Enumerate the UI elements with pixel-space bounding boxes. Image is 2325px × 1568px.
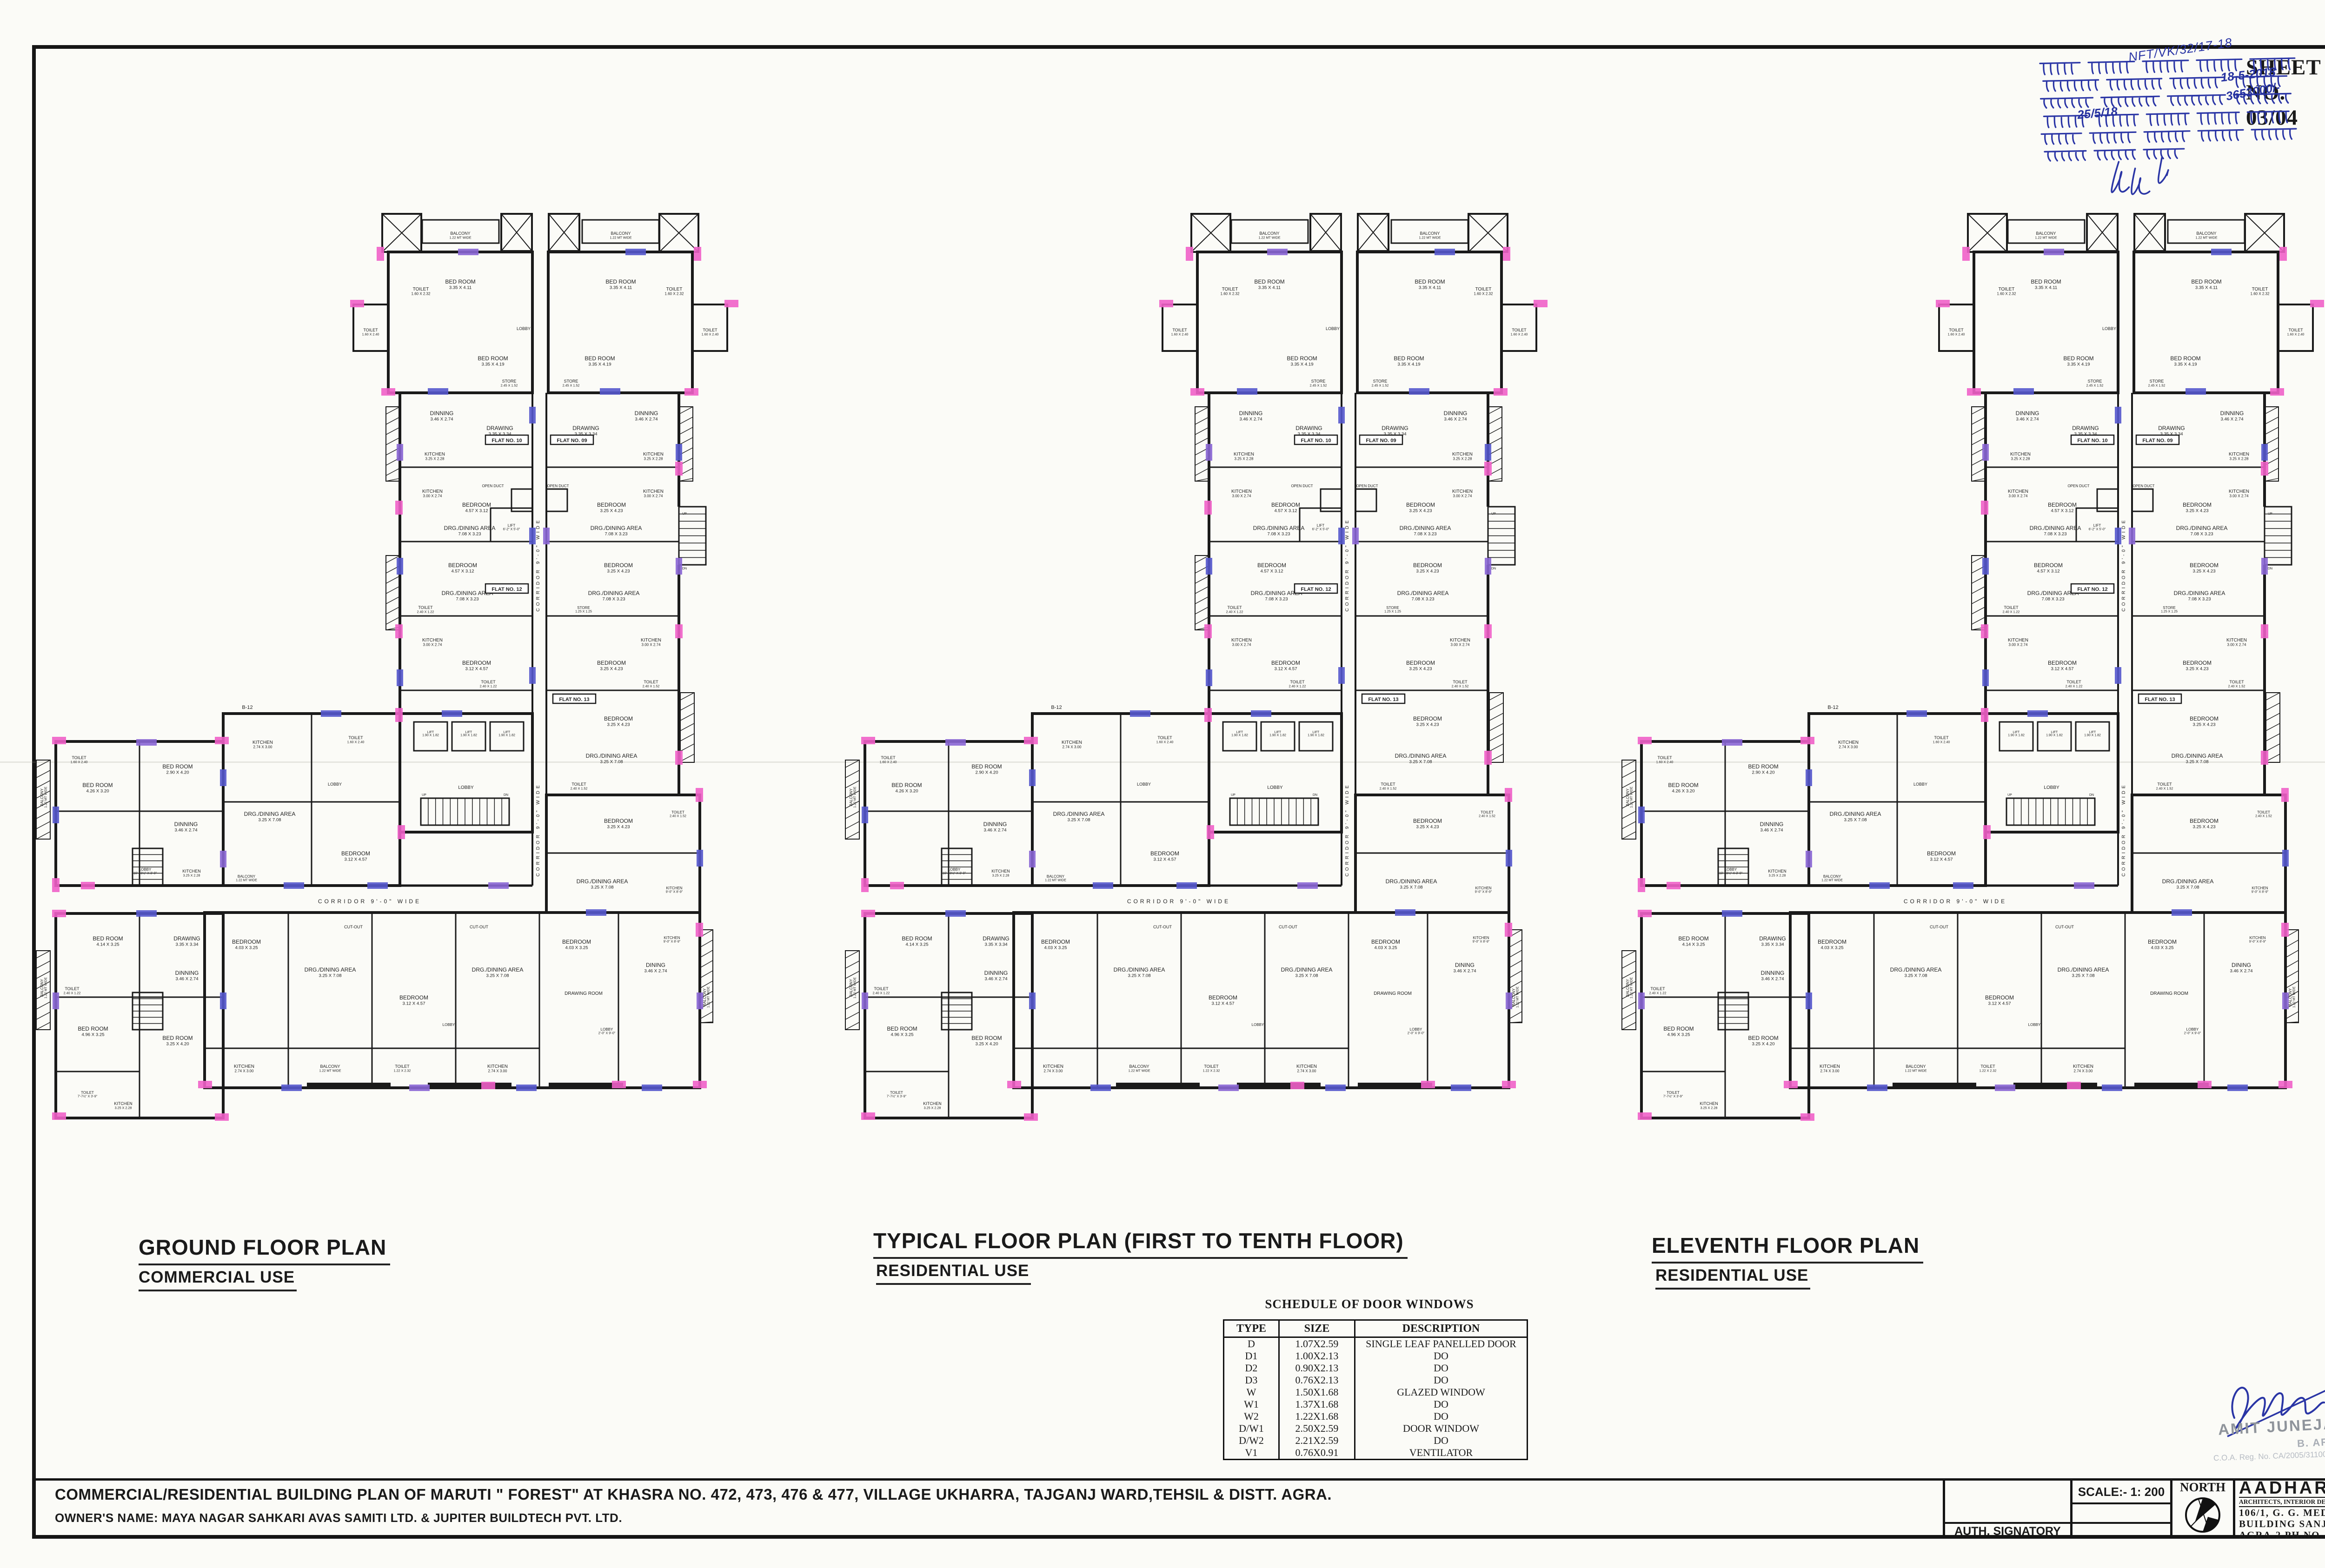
svg-text:UP: UP [2268, 512, 2272, 516]
svg-text:2.74 X 3.00: 2.74 X 3.00 [1820, 1069, 1840, 1073]
svg-text:KITCHEN: KITCHEN [2229, 489, 2249, 494]
svg-text:2.74 X 3.00: 2.74 X 3.00 [1044, 1069, 1063, 1073]
svg-text:3.46 X 2.74: 3.46 X 2.74 [430, 417, 453, 422]
svg-text:BED ROOM: BED ROOM [1663, 1025, 1694, 1032]
svg-text:TOILET: TOILET [666, 287, 683, 292]
north-cell: NORTH [2170, 1478, 2233, 1539]
svg-text:BEDROOM: BEDROOM [1209, 994, 1237, 1001]
svg-text:1.22 X 2.32: 1.22 X 2.32 [1980, 1069, 1997, 1073]
floor-plan-drawing: BED ROOM3.35 X 4.11BED ROOM3.35 X 4.11TO… [837, 207, 1627, 1216]
svg-text:1.90 X 1.82: 1.90 X 1.82 [2008, 734, 2025, 737]
svg-text:OPEN DUCT: OPEN DUCT [482, 484, 504, 488]
svg-text:3.00 X 2.74: 3.00 X 2.74 [2009, 494, 2028, 498]
svg-text:BEDROOM: BEDROOM [1927, 850, 1956, 857]
scale-cell: SCALE:- 1: 200 [2070, 1478, 2170, 1539]
svg-text:2.40 X 1.52: 2.40 X 1.52 [1452, 684, 1469, 688]
svg-text:TOILET: TOILET [1227, 605, 1242, 610]
schedule-row: W11.37X1.68DO [1224, 1398, 1528, 1410]
svg-text:CORRIDOR 9'-0" WIDE: CORRIDOR 9'-0" WIDE [2121, 783, 2126, 876]
svg-text:1.22 X 2.32: 1.22 X 2.32 [1203, 1069, 1220, 1073]
svg-text:3.25 X 2.28: 3.25 X 2.28 [644, 457, 663, 461]
svg-text:3.25 X 4.23: 3.25 X 4.23 [607, 824, 630, 829]
svg-text:3.25 X 2.28: 3.25 X 2.28 [2230, 457, 2249, 461]
svg-text:BED ROOM: BED ROOM [891, 782, 922, 788]
svg-text:1.22 MT WIDE: 1.22 MT WIDE [450, 236, 472, 240]
svg-text:DINNING: DINNING [1761, 970, 1785, 976]
svg-text:UP: UP [1231, 794, 1236, 797]
svg-text:DRAWING: DRAWING [2158, 425, 2185, 431]
svg-text:9'-0" X 8'-9": 9'-0" X 8'-9" [2249, 940, 2266, 944]
svg-text:BALCONY: BALCONY [40, 979, 44, 997]
svg-text:KITCHEN: KITCHEN [2008, 638, 2028, 643]
svg-text:3.25 X 7.08: 3.25 X 7.08 [2072, 973, 2094, 978]
svg-text:BALCONY: BALCONY [1047, 874, 1065, 879]
svg-text:3.35 X 3.34: 3.35 X 3.34 [984, 942, 1008, 947]
svg-text:3.00 X 2.74: 3.00 X 2.74 [1232, 643, 1251, 647]
svg-text:1.90 X 1.82: 1.90 X 1.82 [460, 734, 477, 737]
svg-text:4.57 X 3.12: 4.57 X 3.12 [2051, 508, 2073, 513]
svg-text:1.22 MT WIDE: 1.22 MT WIDE [2035, 236, 2057, 240]
svg-text:BALCONY: BALCONY [611, 231, 631, 236]
svg-text:2.40 X 1.52: 2.40 X 1.52 [1479, 815, 1495, 818]
svg-text:CUT-OUT: CUT-OUT [1279, 925, 1297, 929]
svg-text:BEDROOM: BEDROOM [2148, 939, 2177, 945]
svg-text:DRG./DINING AREA: DRG./DINING AREA [1253, 525, 1305, 531]
svg-text:LOBBY: LOBBY [948, 867, 961, 872]
svg-text:STORE: STORE [564, 379, 578, 384]
svg-text:3.35 X 4.19: 3.35 X 4.19 [2174, 362, 2197, 367]
svg-text:DRAWING: DRAWING [983, 935, 1010, 942]
svg-text:FLAT NO. 12: FLAT NO. 12 [2077, 587, 2107, 592]
svg-text:CORRIDOR 9'-0" WIDE: CORRIDOR 9'-0" WIDE [536, 518, 541, 611]
svg-text:DRG./DINING AREA: DRG./DINING AREA [2174, 590, 2225, 596]
firm-tagline: ARCHITECTS, INTERIOR DESIGNERS, VAASTU C… [2239, 1497, 2325, 1507]
svg-text:DRAWING ROOM: DRAWING ROOM [2150, 991, 2188, 996]
svg-text:2'-0" X 9'-0": 2'-0" X 9'-0" [1408, 1032, 1425, 1035]
svg-text:KITCHEN: KITCHEN [2073, 1064, 2093, 1069]
svg-text:KITCHEN: KITCHEN [1296, 1064, 1317, 1069]
svg-text:KITCHEN: KITCHEN [991, 869, 1010, 873]
svg-text:BED ROOM: BED ROOM [605, 278, 636, 285]
svg-text:3.46 X 2.74: 3.46 X 2.74 [2220, 417, 2244, 422]
svg-text:BED ROOM: BED ROOM [1415, 278, 1445, 285]
svg-text:DRG./DINING AREA: DRG./DINING AREA [1397, 590, 1449, 596]
svg-text:BALCONY: BALCONY [849, 979, 853, 997]
svg-text:CORRIDOR 9'-0" WIDE: CORRIDOR 9'-0" WIDE [318, 898, 421, 905]
svg-text:3.25 X 7.08: 3.25 X 7.08 [1067, 817, 1090, 822]
svg-text:9'-0" X 8'-9": 9'-0" X 8'-9" [1473, 940, 1490, 944]
firm-address-1: 106/1, G. G. MEDICAL INSTT. [2239, 1507, 2325, 1518]
firm-cell: AADHARSHILA ARCHITECTS, INTERIOR DESIGNE… [2233, 1478, 2325, 1539]
svg-text:BALCONY: BALCONY [40, 788, 44, 806]
svg-text:BALCONY: BALCONY [1626, 979, 1630, 997]
svg-text:1.22 MT WIDE: 1.22 MT WIDE [1905, 1069, 1927, 1073]
svg-text:2.74 X 3.00: 2.74 X 3.00 [1063, 745, 1082, 749]
svg-text:DRG./DINING AREA: DRG./DINING AREA [1386, 878, 1437, 885]
svg-text:KITCHEN: KITCHEN [234, 1064, 254, 1069]
svg-text:3.12 X 4.57: 3.12 X 4.57 [465, 666, 488, 671]
svg-text:2.40 X 1.22: 2.40 X 1.22 [2003, 610, 2020, 614]
svg-text:KITCHEN: KITCHEN [1768, 869, 1787, 873]
schedule-row: W1.50X1.68GLAZED WINDOW [1224, 1386, 1528, 1398]
svg-text:DRG./DINING AREA: DRG./DINING AREA [444, 525, 496, 531]
svg-text:BALCONY: BALCONY [1823, 874, 1841, 879]
svg-text:1.60 X 2.40: 1.60 X 2.40 [1933, 740, 1950, 744]
svg-text:3.35 X 4.19: 3.35 X 4.19 [1290, 362, 1313, 367]
svg-text:OPEN DUCT: OPEN DUCT [2132, 484, 2154, 488]
svg-text:3.25 X 4.23: 3.25 X 4.23 [2192, 722, 2215, 727]
svg-text:FLAT NO. 13: FLAT NO. 13 [1368, 697, 1398, 702]
svg-text:CORRIDOR 9'-0" WIDE: CORRIDOR 9'-0" WIDE [1345, 518, 1350, 611]
svg-text:DN: DN [682, 567, 687, 570]
svg-text:CUT-OUT: CUT-OUT [1930, 925, 1948, 929]
svg-text:KITCHEN: KITCHEN [1820, 1064, 1840, 1069]
svg-text:1.60 X 2.40: 1.60 X 2.40 [2287, 332, 2305, 337]
svg-text:7.08 X 3.23: 7.08 X 3.23 [2041, 596, 2064, 602]
svg-text:DINNING: DINNING [1444, 410, 1468, 417]
svg-text:1.90 X 1.82: 1.90 X 1.82 [1308, 734, 1324, 737]
svg-text:1.90 X 1.82: 1.90 X 1.82 [1269, 734, 1286, 737]
svg-text:1.22 MT WIDE: 1.22 MT WIDE [2293, 986, 2296, 1008]
svg-text:KITCHEN: KITCHEN [114, 1101, 133, 1106]
svg-text:LOBBY: LOBBY [139, 867, 152, 872]
svg-text:4.03 X 3.25: 4.03 X 3.25 [2151, 945, 2173, 950]
svg-text:6'-2" X 5'-0": 6'-2" X 5'-0" [1312, 528, 1329, 531]
svg-text:TOILET: TOILET [1999, 287, 2015, 292]
svg-text:BEDROOM: BEDROOM [1257, 562, 1286, 569]
svg-text:1.90 X 1.82: 1.90 X 1.82 [422, 734, 439, 737]
svg-text:KITCHEN: KITCHEN [923, 1101, 942, 1106]
svg-text:3.25 X 4.23: 3.25 X 4.23 [607, 722, 630, 727]
svg-text:TOILET: TOILET [644, 680, 658, 684]
svg-text:9'-0" X 8'-9": 9'-0" X 8'-9" [2252, 891, 2269, 894]
svg-text:4.14 X 3.25: 4.14 X 3.25 [96, 942, 119, 947]
svg-text:B-12: B-12 [1827, 705, 1838, 710]
svg-text:1.22 MT WIDE: 1.22 MT WIDE [1419, 236, 1441, 240]
svg-text:1.22 MT WIDE: 1.22 MT WIDE [236, 879, 257, 882]
svg-text:3.35 X 4.19: 3.35 X 4.19 [1397, 362, 1420, 367]
svg-text:STORE: STORE [577, 606, 590, 610]
floor-plan-typical: BED ROOM3.35 X 4.11BED ROOM3.35 X 4.11TO… [837, 207, 1627, 1216]
svg-text:3.25 X 7.08: 3.25 X 7.08 [258, 817, 281, 822]
svg-text:3.25 X 2.28: 3.25 X 2.28 [425, 457, 445, 461]
svg-text:3.00 X 2.74: 3.00 X 2.74 [2227, 643, 2246, 647]
svg-text:2.40 X 1.22: 2.40 X 1.22 [1226, 610, 1243, 614]
svg-text:3.25 X 7.08: 3.25 X 7.08 [1400, 885, 1422, 890]
svg-text:3.46 X 2.74: 3.46 X 2.74 [635, 417, 658, 422]
svg-text:KITCHEN: KITCHEN [422, 638, 443, 643]
plan-use-eleventh: RESIDENTIAL USE [1655, 1266, 1810, 1290]
auth-signatory-cell: AUTH. SIGNATORY [1945, 1478, 2070, 1539]
svg-text:2.40 X 1.22: 2.40 X 1.22 [417, 610, 434, 614]
svg-text:KITCHEN: KITCHEN [422, 489, 443, 494]
svg-text:STORE: STORE [1386, 606, 1399, 610]
schedule-col-type: TYPE [1224, 1320, 1279, 1337]
svg-text:4.96 X 3.25: 4.96 X 3.25 [81, 1032, 104, 1037]
svg-text:BEDROOM: BEDROOM [232, 939, 261, 945]
svg-text:BEDROOM: BEDROOM [399, 994, 428, 1001]
svg-text:DRAWING: DRAWING [1759, 935, 1786, 942]
svg-text:3.35 X 4.11: 3.35 X 4.11 [2035, 285, 2057, 290]
svg-text:DRG./DINING AREA: DRG./DINING AREA [1281, 966, 1333, 973]
svg-text:1.22 MT WIDE: 1.22 MT WIDE [854, 787, 857, 808]
svg-text:1.60 X 2.40: 1.60 X 2.40 [347, 740, 365, 744]
svg-text:BED ROOM: BED ROOM [2191, 278, 2221, 285]
plan-title-typical: TYPICAL FLOOR PLAN (FIRST TO TENTH FLOOR… [873, 1228, 1408, 1259]
svg-text:1.25 X 1.25: 1.25 X 1.25 [575, 610, 592, 614]
floor-plan-drawing: BED ROOM3.35 X 4.11BED ROOM3.35 X 4.11TO… [1614, 207, 2325, 1216]
schedule-row: D1.07X2.59SINGLE LEAF PANELLED DOOR [1224, 1337, 1528, 1350]
svg-text:4.26 X 3.20: 4.26 X 3.20 [86, 788, 109, 794]
svg-text:9'-0" X 8'-9": 9'-0" X 8'-9" [666, 891, 683, 894]
svg-text:KITCHEN: KITCHEN [2010, 452, 2031, 457]
svg-text:BED ROOM: BED ROOM [2170, 355, 2200, 362]
svg-text:1.60 X 2.32: 1.60 X 2.32 [1474, 292, 1493, 296]
svg-text:BED ROOM: BED ROOM [478, 355, 508, 362]
svg-text:1.90 X 1.82: 1.90 X 1.82 [2084, 734, 2101, 737]
svg-text:DRAWING: DRAWING [486, 425, 513, 431]
svg-text:3.25 X 7.08: 3.25 X 7.08 [591, 885, 613, 890]
svg-text:CORRIDOR 9'-0" WIDE: CORRIDOR 9'-0" WIDE [536, 783, 541, 876]
svg-text:3.25 X 2.28: 3.25 X 2.28 [2011, 457, 2030, 461]
svg-text:BEDROOM: BEDROOM [462, 660, 491, 666]
svg-text:KITCHEN: KITCHEN [643, 489, 664, 494]
svg-text:BED ROOM: BED ROOM [887, 1025, 917, 1032]
svg-text:3.00 X 2.74: 3.00 X 2.74 [2230, 494, 2249, 498]
svg-text:7.08 X 3.23: 7.08 X 3.23 [458, 531, 481, 536]
svg-text:TOILET: TOILET [2004, 605, 2019, 610]
project-title: COMMERCIAL/RESIDENTIAL BUILDING PLAN OF … [55, 1486, 1332, 1503]
svg-text:TOILET: TOILET [1667, 1091, 1680, 1095]
svg-text:1.60 X 2.40: 1.60 X 2.40 [1511, 332, 1528, 337]
schedule-row: D/W12.50X2.59DOOR WINDOW [1224, 1422, 1528, 1435]
svg-text:2.45 X 1.52: 2.45 X 1.52 [1372, 384, 1389, 388]
svg-text:BEDROOM: BEDROOM [2183, 660, 2212, 666]
svg-text:DRAWING: DRAWING [2072, 425, 2099, 431]
svg-text:KITCHEN: KITCHEN [1062, 740, 1082, 745]
svg-text:3.25 X 7.08: 3.25 X 7.08 [1128, 973, 1150, 978]
svg-text:4.96 X 3.25: 4.96 X 3.25 [890, 1032, 913, 1037]
svg-text:STORE: STORE [2088, 379, 2102, 384]
svg-text:7.08 X 3.23: 7.08 X 3.23 [1267, 531, 1290, 536]
svg-text:1.22 MT WIDE: 1.22 MT WIDE [1630, 977, 1634, 999]
svg-text:4.57 X 3.12: 4.57 X 3.12 [1274, 508, 1297, 513]
svg-text:1.90 X 1.82: 1.90 X 1.82 [1231, 734, 1248, 737]
svg-text:BEDROOM: BEDROOM [448, 562, 477, 569]
architect-degree: B. ARCH [2297, 1435, 2325, 1449]
svg-text:DINNING: DINNING [1760, 821, 1784, 827]
svg-text:BEDROOM: BEDROOM [562, 939, 591, 945]
svg-text:9'-0" X 8'-9": 9'-0" X 8'-9" [1475, 891, 1492, 894]
svg-text:4.57 X 3.12: 4.57 X 3.12 [451, 569, 474, 574]
svg-text:3.12 X 4.57: 3.12 X 4.57 [1988, 1001, 2011, 1006]
north-compass-icon [2182, 1494, 2224, 1536]
svg-text:3.00 X 2.74: 3.00 X 2.74 [1232, 494, 1251, 498]
svg-text:3.46 X 2.74: 3.46 X 2.74 [2230, 968, 2253, 973]
svg-text:BEDROOM: BEDROOM [1413, 562, 1442, 569]
svg-text:3.25 X 2.28: 3.25 X 2.28 [1701, 1106, 1718, 1110]
svg-text:KITCHEN: KITCHEN [1838, 740, 1859, 745]
svg-text:LOBBY: LOBBY [1137, 782, 1151, 787]
svg-text:3.46 X 2.74: 3.46 X 2.74 [1444, 417, 1467, 422]
svg-text:BALCONY: BALCONY [849, 788, 853, 806]
svg-text:TOILET: TOILET [481, 680, 496, 684]
svg-text:FLAT NO. 12: FLAT NO. 12 [1301, 587, 1331, 592]
svg-text:3.46 X 2.74: 3.46 X 2.74 [644, 968, 667, 973]
svg-text:BED ROOM: BED ROOM [585, 355, 615, 362]
svg-text:3.25 X 2.28: 3.25 X 2.28 [115, 1106, 132, 1110]
svg-text:3.35 X 4.19: 3.35 X 4.19 [481, 362, 504, 367]
svg-text:DRG./DINING AREA: DRG./DINING AREA [2162, 878, 2214, 885]
svg-text:DN: DN [2089, 794, 2094, 797]
svg-text:4.03 X 3.25: 4.03 X 3.25 [1044, 945, 1067, 950]
svg-text:KITCHEN: KITCHEN [1475, 886, 1491, 890]
schedule-row: D/W22.21X2.59DO [1224, 1435, 1528, 1447]
svg-text:UP: UP [682, 512, 687, 516]
svg-text:KITCHEN: KITCHEN [1450, 638, 1470, 643]
svg-text:TOILET: TOILET [1157, 735, 1172, 740]
svg-text:3.46 X 2.74: 3.46 X 2.74 [2016, 417, 2039, 422]
svg-text:7'-7½" X 3'-9": 7'-7½" X 3'-9" [78, 1095, 98, 1098]
svg-text:1.60 X 2.32: 1.60 X 2.32 [412, 292, 431, 296]
svg-text:3.35 X 4.11: 3.35 X 4.11 [610, 285, 632, 290]
schedule-row: V10.76X0.91VENTILATOR [1224, 1447, 1528, 1460]
plan-use-ground: COMMERCIAL USE [139, 1268, 297, 1291]
svg-text:DRG./DINING AREA: DRG./DINING AREA [1114, 966, 1165, 973]
svg-text:DRG./DINING AREA: DRG./DINING AREA [1053, 811, 1105, 817]
svg-text:DRG./DINING AREA: DRG./DINING AREA [2172, 753, 2223, 759]
svg-text:TOILET: TOILET [1204, 1064, 1219, 1069]
svg-text:1.25 X 1.25: 1.25 X 1.25 [1384, 610, 1401, 614]
svg-text:UP: UP [422, 794, 426, 797]
svg-text:B-12: B-12 [242, 705, 252, 710]
svg-text:BEDROOM: BEDROOM [341, 850, 370, 857]
svg-text:3.25 X 7.08: 3.25 X 7.08 [2176, 885, 2199, 890]
svg-text:DRG./DINING AREA: DRG./DINING AREA [591, 525, 642, 531]
svg-text:2.74 X 3.00: 2.74 X 3.00 [2074, 1069, 2093, 1073]
svg-text:3.46 X 2.74: 3.46 X 2.74 [1761, 976, 1784, 981]
svg-text:DN: DN [1491, 567, 1496, 570]
svg-text:2.45 X 1.52: 2.45 X 1.52 [2086, 384, 2104, 388]
svg-text:2.40 X 1.22: 2.40 X 1.22 [873, 991, 890, 995]
svg-text:BED ROOM: BED ROOM [445, 278, 475, 285]
svg-text:TOILET: TOILET [881, 755, 896, 760]
auth-cell-divider [1945, 1522, 2070, 1524]
svg-text:6'-2" X 5'-0": 6'-2" X 5'-0" [503, 528, 520, 531]
svg-text:2.90 X 4.20: 2.90 X 4.20 [1752, 770, 1774, 775]
svg-text:BALCONY: BALCONY [1906, 1064, 1926, 1069]
svg-text:CORRIDOR 9'-0" WIDE: CORRIDOR 9'-0" WIDE [2121, 518, 2126, 611]
svg-text:1.60 X 2.40: 1.60 X 2.40 [1156, 740, 1174, 744]
svg-text:BED ROOM: BED ROOM [902, 935, 932, 942]
schedule-table: TYPESIZEDESCRIPTIOND1.07X2.59SINGLE LEAF… [1223, 1319, 1528, 1460]
scale-label: SCALE:- 1: 200 [2073, 1485, 2170, 1499]
svg-text:DRAWING ROOM: DRAWING ROOM [1374, 991, 1412, 996]
svg-text:2.40 X 1.22: 2.40 X 1.22 [64, 991, 81, 995]
svg-text:3.35 X 4.11: 3.35 X 4.11 [449, 285, 472, 290]
svg-text:OPEN DUCT: OPEN DUCT [1356, 484, 1378, 488]
svg-text:3.35 X 3.34: 3.35 X 3.34 [1761, 942, 1784, 947]
svg-text:3.25 X 7.08: 3.25 X 7.08 [1295, 973, 1318, 978]
svg-text:1.22 MT WIDE: 1.22 MT WIDE [319, 1069, 341, 1073]
svg-text:KITCHEN: KITCHEN [182, 869, 201, 873]
svg-text:TOILET: TOILET [2257, 810, 2270, 814]
svg-text:DRG./DINING AREA: DRG./DINING AREA [1395, 753, 1447, 759]
schedule-row: W21.22X1.68DO [1224, 1410, 1528, 1422]
svg-text:10'-10½" X 3'-0": 10'-10½" X 3'-0" [1719, 872, 1743, 875]
svg-text:OPEN DUCT: OPEN DUCT [2067, 484, 2089, 488]
svg-text:10'-10½" X 3'-0": 10'-10½" X 3'-0" [133, 872, 157, 875]
svg-text:BEDROOM: BEDROOM [1413, 715, 1442, 722]
svg-text:KITCHEN: KITCHEN [1234, 452, 1254, 457]
svg-text:BEDROOM: BEDROOM [604, 818, 633, 824]
svg-text:OPEN DUCT: OPEN DUCT [1291, 484, 1313, 488]
svg-text:3.25 X 2.28: 3.25 X 2.28 [1453, 457, 1472, 461]
svg-text:BALCONY: BALCONY [1420, 231, 1440, 236]
svg-text:DRG./DINING AREA: DRG./DINING AREA [1400, 525, 1451, 531]
svg-text:2.40 X 1.52: 2.40 X 1.52 [1380, 787, 1397, 791]
svg-text:DINING: DINING [646, 962, 665, 968]
svg-text:DRG./DINING AREA: DRG./DINING AREA [577, 878, 628, 885]
svg-text:DRG./DINING AREA: DRG./DINING AREA [244, 811, 296, 817]
svg-text:2.40 X 1.22: 2.40 X 1.22 [480, 684, 497, 688]
svg-text:1.60 X 2.40: 1.60 X 2.40 [1171, 332, 1189, 337]
svg-text:CORRIDOR 9'-0" WIDE: CORRIDOR 9'-0" WIDE [1345, 783, 1350, 876]
svg-text:1.60 X 2.32: 1.60 X 2.32 [2251, 292, 2270, 296]
svg-text:FLAT NO. 10: FLAT NO. 10 [492, 438, 522, 443]
svg-text:3.12 X 4.57: 3.12 X 4.57 [2051, 666, 2073, 671]
svg-text:BED ROOM: BED ROOM [1668, 782, 1698, 788]
svg-text:9'-0" X 8'-9": 9'-0" X 8'-9" [664, 940, 681, 944]
svg-text:DRG./DINING AREA: DRG./DINING AREA [305, 966, 356, 973]
svg-text:3.25 X 2.28: 3.25 X 2.28 [1235, 457, 1254, 461]
svg-text:4.26 X 3.20: 4.26 X 3.20 [895, 788, 918, 794]
svg-text:4.14 X 3.25: 4.14 X 3.25 [1682, 942, 1705, 947]
svg-text:LOBBY: LOBBY [443, 1023, 455, 1027]
svg-text:3.25 X 4.23: 3.25 X 4.23 [1416, 722, 1439, 727]
plan-title-eleventh: ELEVENTH FLOOR PLAN [1652, 1233, 1923, 1264]
svg-text:TOILET: TOILET [874, 986, 889, 991]
svg-text:DRG./DINING AREA: DRG./DINING AREA [1830, 811, 1881, 817]
svg-text:BED ROOM: BED ROOM [1678, 935, 1708, 942]
svg-text:FLAT NO. 12: FLAT NO. 12 [492, 587, 522, 592]
svg-text:DRAWING: DRAWING [572, 425, 599, 431]
svg-text:3.25 X 4.23: 3.25 X 4.23 [1416, 569, 1439, 574]
svg-text:UP: UP [2007, 794, 2012, 797]
owner-name: OWNER'S NAME: MAYA NAGAR SAHKARI AVAS SA… [55, 1511, 622, 1525]
svg-text:2.40 X 1.52: 2.40 X 1.52 [670, 815, 686, 818]
firm-address-3: AGRA-2 PH.NO. 4000820 [2239, 1529, 2325, 1541]
svg-text:3.25 X 4.20: 3.25 X 4.20 [166, 1041, 189, 1046]
svg-text:TOILET: TOILET [1934, 735, 1949, 740]
plan-use-typical: RESIDENTIAL USE [876, 1262, 1031, 1285]
svg-text:3.25 X 4.23: 3.25 X 4.23 [600, 666, 623, 671]
svg-text:BEDROOM: BEDROOM [1371, 939, 1400, 945]
svg-text:LOBBY: LOBBY [2186, 1027, 2199, 1032]
svg-text:TOILET: TOILET [1290, 680, 1305, 684]
svg-text:BALCONY: BALCONY [238, 874, 256, 879]
svg-text:3.12 X 4.57: 3.12 X 4.57 [1274, 666, 1297, 671]
svg-text:BALCONY: BALCONY [2036, 231, 2056, 236]
svg-text:3.25 X 7.08: 3.25 X 7.08 [1844, 817, 1867, 822]
svg-text:LOBBY: LOBBY [458, 785, 474, 790]
svg-text:FLAT NO. 13: FLAT NO. 13 [2145, 697, 2175, 702]
svg-text:BED ROOM: BED ROOM [1287, 355, 1317, 362]
svg-text:KITCHEN: KITCHEN [1452, 489, 1473, 494]
svg-text:BED ROOM: BED ROOM [162, 763, 193, 770]
svg-text:3.25 X 4.20: 3.25 X 4.20 [975, 1041, 998, 1046]
floor-plan-ground: BED ROOM3.35 X 4.11BED ROOM3.35 X 4.11TO… [28, 207, 818, 1216]
